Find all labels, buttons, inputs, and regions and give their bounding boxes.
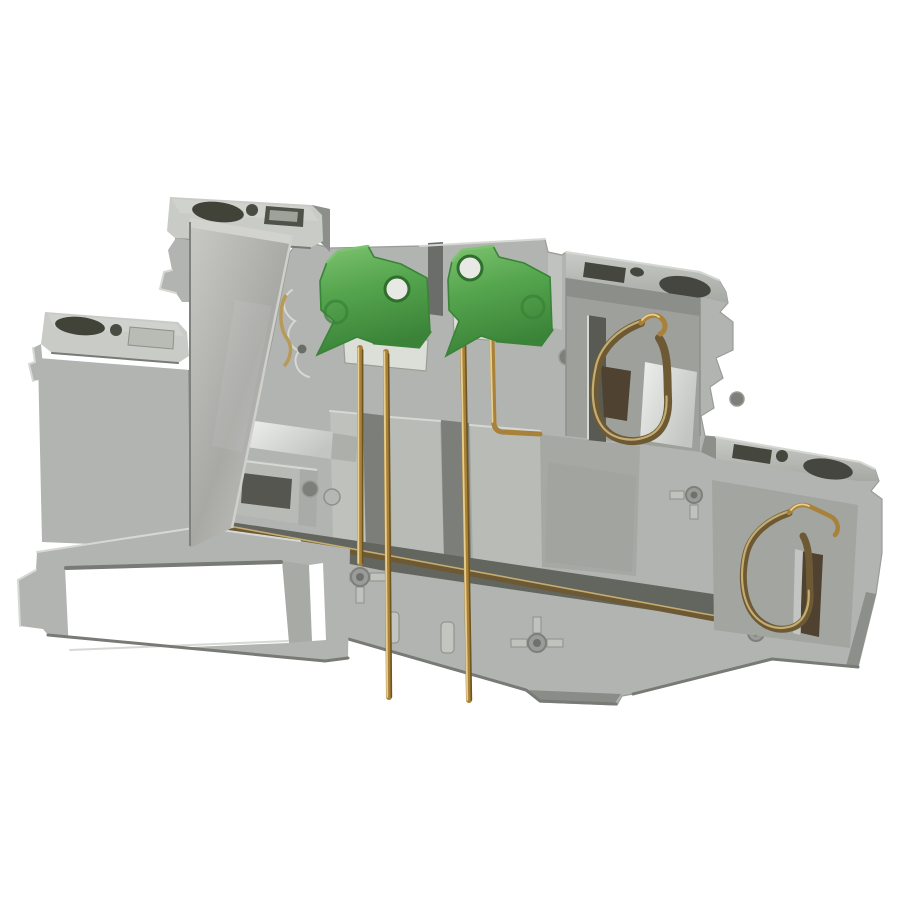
- stud: [441, 622, 454, 653]
- channel-wall-2: [390, 416, 444, 562]
- channel-wall-3: [470, 424, 542, 570]
- clamp-cavity: [712, 480, 858, 648]
- center-panel: [545, 462, 636, 572]
- small-opening: [110, 324, 122, 336]
- clamp-inside-opening: [269, 210, 298, 222]
- plug-hole: [458, 256, 482, 280]
- left-terminal: [29, 312, 192, 548]
- round-hole-3: [302, 481, 318, 497]
- clamp-window: [128, 327, 174, 349]
- spring-face-dark: [601, 366, 631, 421]
- wedge-hole: [298, 345, 307, 354]
- small-opening: [246, 204, 258, 216]
- terminal-front-face: [38, 358, 192, 548]
- plug-hole: [385, 277, 409, 301]
- round-hole-2: [730, 392, 744, 406]
- frame-column: [298, 469, 318, 527]
- boss-hole: [356, 573, 364, 581]
- small-opening: [776, 450, 788, 462]
- boss-hole: [533, 639, 541, 647]
- frame-window: [241, 473, 292, 509]
- slab-slot: [428, 242, 443, 316]
- boss-hole: [691, 492, 698, 499]
- current-bar-end: [331, 433, 358, 462]
- product-image: Gray two-level DIN rail spring-clamp ter…: [0, 0, 900, 900]
- terminal-block-photo: Gray two-level DIN rail spring-clamp ter…: [0, 0, 900, 900]
- round-stud: [324, 489, 340, 505]
- foot-slot: [309, 563, 326, 641]
